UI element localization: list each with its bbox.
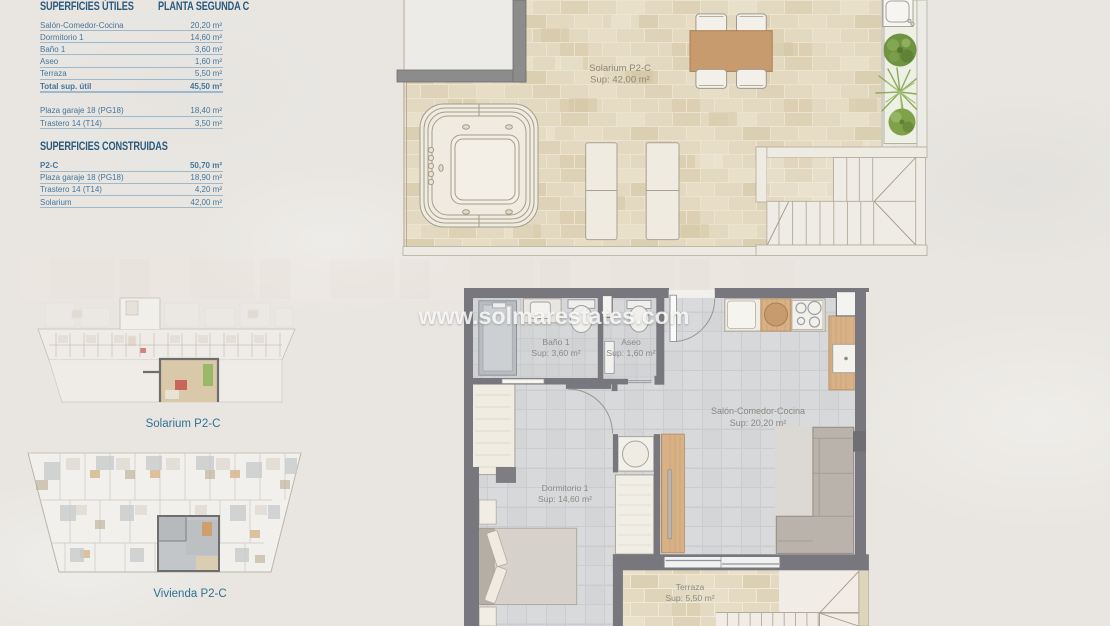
svg-text:Sup: 42,00 m²: Sup: 42,00 m² [590, 75, 650, 86]
svg-text:Salón-Comedor-Cocina: Salón-Comedor-Cocina [711, 406, 805, 416]
svg-text:Sup: 1,60 m²: Sup: 1,60 m² [606, 348, 655, 358]
svg-text:Sup: 5,50 m²: Sup: 5,50 m² [665, 593, 714, 603]
svg-text:Sup: 14,60 m²: Sup: 14,60 m² [538, 494, 592, 504]
svg-text:Terraza: Terraza [676, 582, 705, 592]
svg-text:Sup: 20,20 m²: Sup: 20,20 m² [730, 418, 787, 428]
svg-text:Baño 1: Baño 1 [542, 337, 569, 347]
svg-text:Sup: 3,60 m²: Sup: 3,60 m² [531, 348, 580, 358]
svg-text:Solarium P2-C: Solarium P2-C [589, 63, 651, 74]
svg-text:Dormitorio 1: Dormitorio 1 [542, 483, 589, 493]
svg-text:Solarium P2-C: Solarium P2-C [146, 418, 221, 430]
svg-text:Aseo: Aseo [621, 337, 641, 347]
svg-text:Vivienda P2-C: Vivienda P2-C [153, 588, 226, 600]
